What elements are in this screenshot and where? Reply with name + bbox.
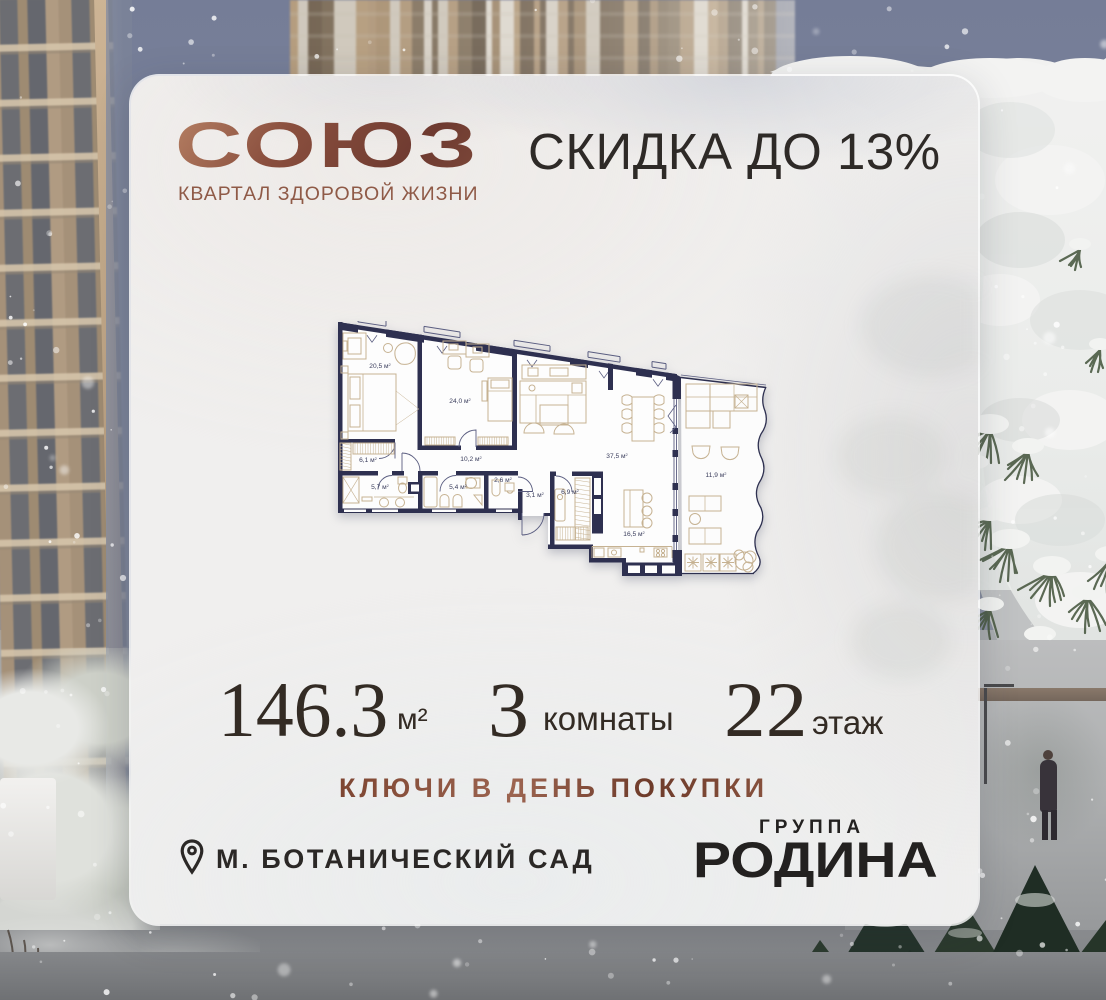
svg-text:10,2 м2: 10,2 м2: [460, 455, 482, 463]
svg-text:16,5 м2: 16,5 м2: [623, 530, 645, 538]
svg-text:37,5 м2: 37,5 м2: [606, 452, 628, 460]
svg-text:20,5 м2: 20,5 м2: [369, 362, 391, 370]
svg-text:11,9 м2: 11,9 м2: [706, 471, 728, 479]
svg-text:24,0 м2: 24,0 м2: [449, 397, 471, 405]
